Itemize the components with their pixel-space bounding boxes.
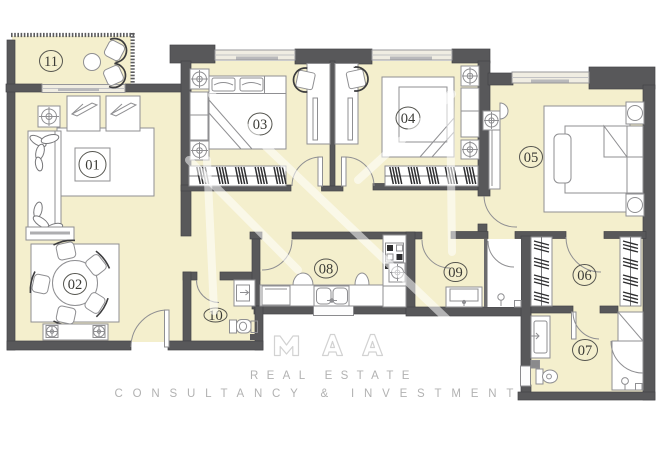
svg-text:REAL ESTATE: REAL ESTATE bbox=[250, 370, 414, 382]
svg-text:05: 05 bbox=[524, 150, 539, 166]
svg-text:03: 03 bbox=[253, 117, 268, 133]
svg-text:01: 01 bbox=[85, 157, 100, 173]
svg-text:02: 02 bbox=[68, 277, 83, 293]
svg-text:08: 08 bbox=[319, 261, 334, 277]
svg-text:06: 06 bbox=[577, 268, 592, 284]
svg-text:CONSULTANCY & INVESTMENTS: CONSULTANCY & INVESTMENTS bbox=[115, 388, 536, 400]
svg-text:07: 07 bbox=[578, 343, 593, 359]
svg-text:09: 09 bbox=[448, 265, 463, 281]
svg-text:11: 11 bbox=[44, 54, 58, 70]
